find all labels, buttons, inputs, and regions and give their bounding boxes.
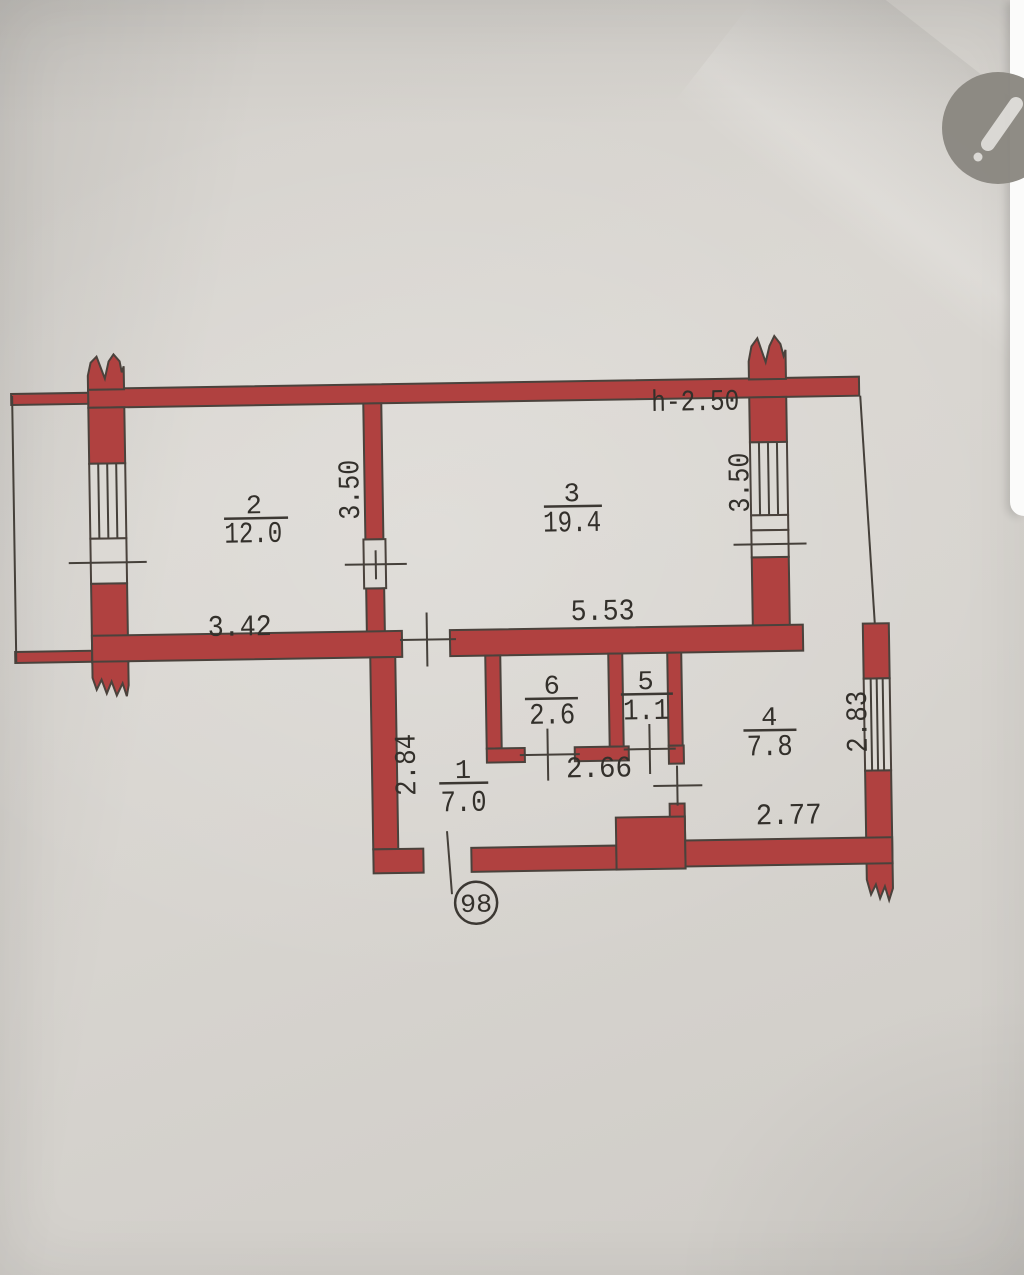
- wall-bottom-middle: [471, 846, 616, 872]
- wall-break-bottom-right: [867, 861, 894, 900]
- wall-bottom-step: [616, 816, 686, 869]
- wall-break-top-right: [748, 336, 786, 380]
- floor-plan-photo: h-2.50 2 12.0 3.42 3 19.4 5.53 3.50 3.50…: [0, 0, 1024, 1275]
- wall-right-of-room3-upper: [749, 397, 787, 443]
- dim-room2-window: 3.50: [334, 459, 369, 520]
- dim-tick-room3-window: [734, 544, 807, 545]
- wall-left-upper: [88, 407, 125, 464]
- ceiling-height-label: h-2.50: [651, 386, 740, 421]
- wall-room6-left: [485, 655, 501, 748]
- wall-room3-right-thin: [860, 396, 875, 624]
- wall-top: [88, 377, 859, 408]
- wall-bottom-left: [373, 849, 423, 874]
- room6-area-label: 2.6: [529, 699, 576, 734]
- edit-button[interactable]: [942, 72, 1024, 184]
- window-sill-room3: [751, 515, 788, 531]
- dim-tick-left-window: [69, 562, 147, 563]
- balcony-door-left: [90, 538, 127, 584]
- wall-right-of-room3-lower: [752, 557, 790, 627]
- wall-break-top-left: [87, 354, 124, 390]
- balcony-edge-line: [12, 396, 16, 662]
- wall-2-3-lower: [366, 588, 385, 632]
- room2-area-label: 12.0: [224, 518, 283, 553]
- door-mark-entrance: [447, 831, 452, 894]
- wall-room6-room5: [608, 653, 623, 746]
- dim-room4-width: 2.77: [756, 799, 823, 834]
- dim-room2-width: 3.42: [208, 611, 273, 646]
- wall-band-under-room6: [487, 748, 525, 763]
- pencil-icon: [942, 72, 1024, 184]
- floor-plan: h-2.50 2 12.0 3.42 3 19.4 5.53 3.50 3.50…: [0, 0, 1024, 1275]
- wall-room5-right: [667, 653, 682, 746]
- dim-inner-width: 2.66: [566, 752, 633, 787]
- room4-area-label: 7.8: [746, 731, 793, 766]
- wall-right-upper: [863, 623, 890, 678]
- balcony-bottom-wall: [15, 651, 92, 663]
- dim-room3-window: 3.50: [724, 452, 759, 513]
- dim-room4-window: 2.83: [842, 690, 877, 753]
- apartment-number-label: 98: [460, 890, 492, 920]
- wall-room4-bottom: [685, 837, 892, 866]
- room3-area-label: 19.4: [543, 507, 602, 542]
- room5-area-label: 1.1: [623, 695, 670, 730]
- room1-area-label: 7.0: [440, 787, 487, 822]
- dim-hallway-depth: 2.84: [390, 734, 425, 797]
- dim-room3-width: 5.53: [570, 595, 635, 630]
- wall-break-bottom-left: [92, 660, 129, 697]
- balcony-top-wall: [11, 393, 88, 405]
